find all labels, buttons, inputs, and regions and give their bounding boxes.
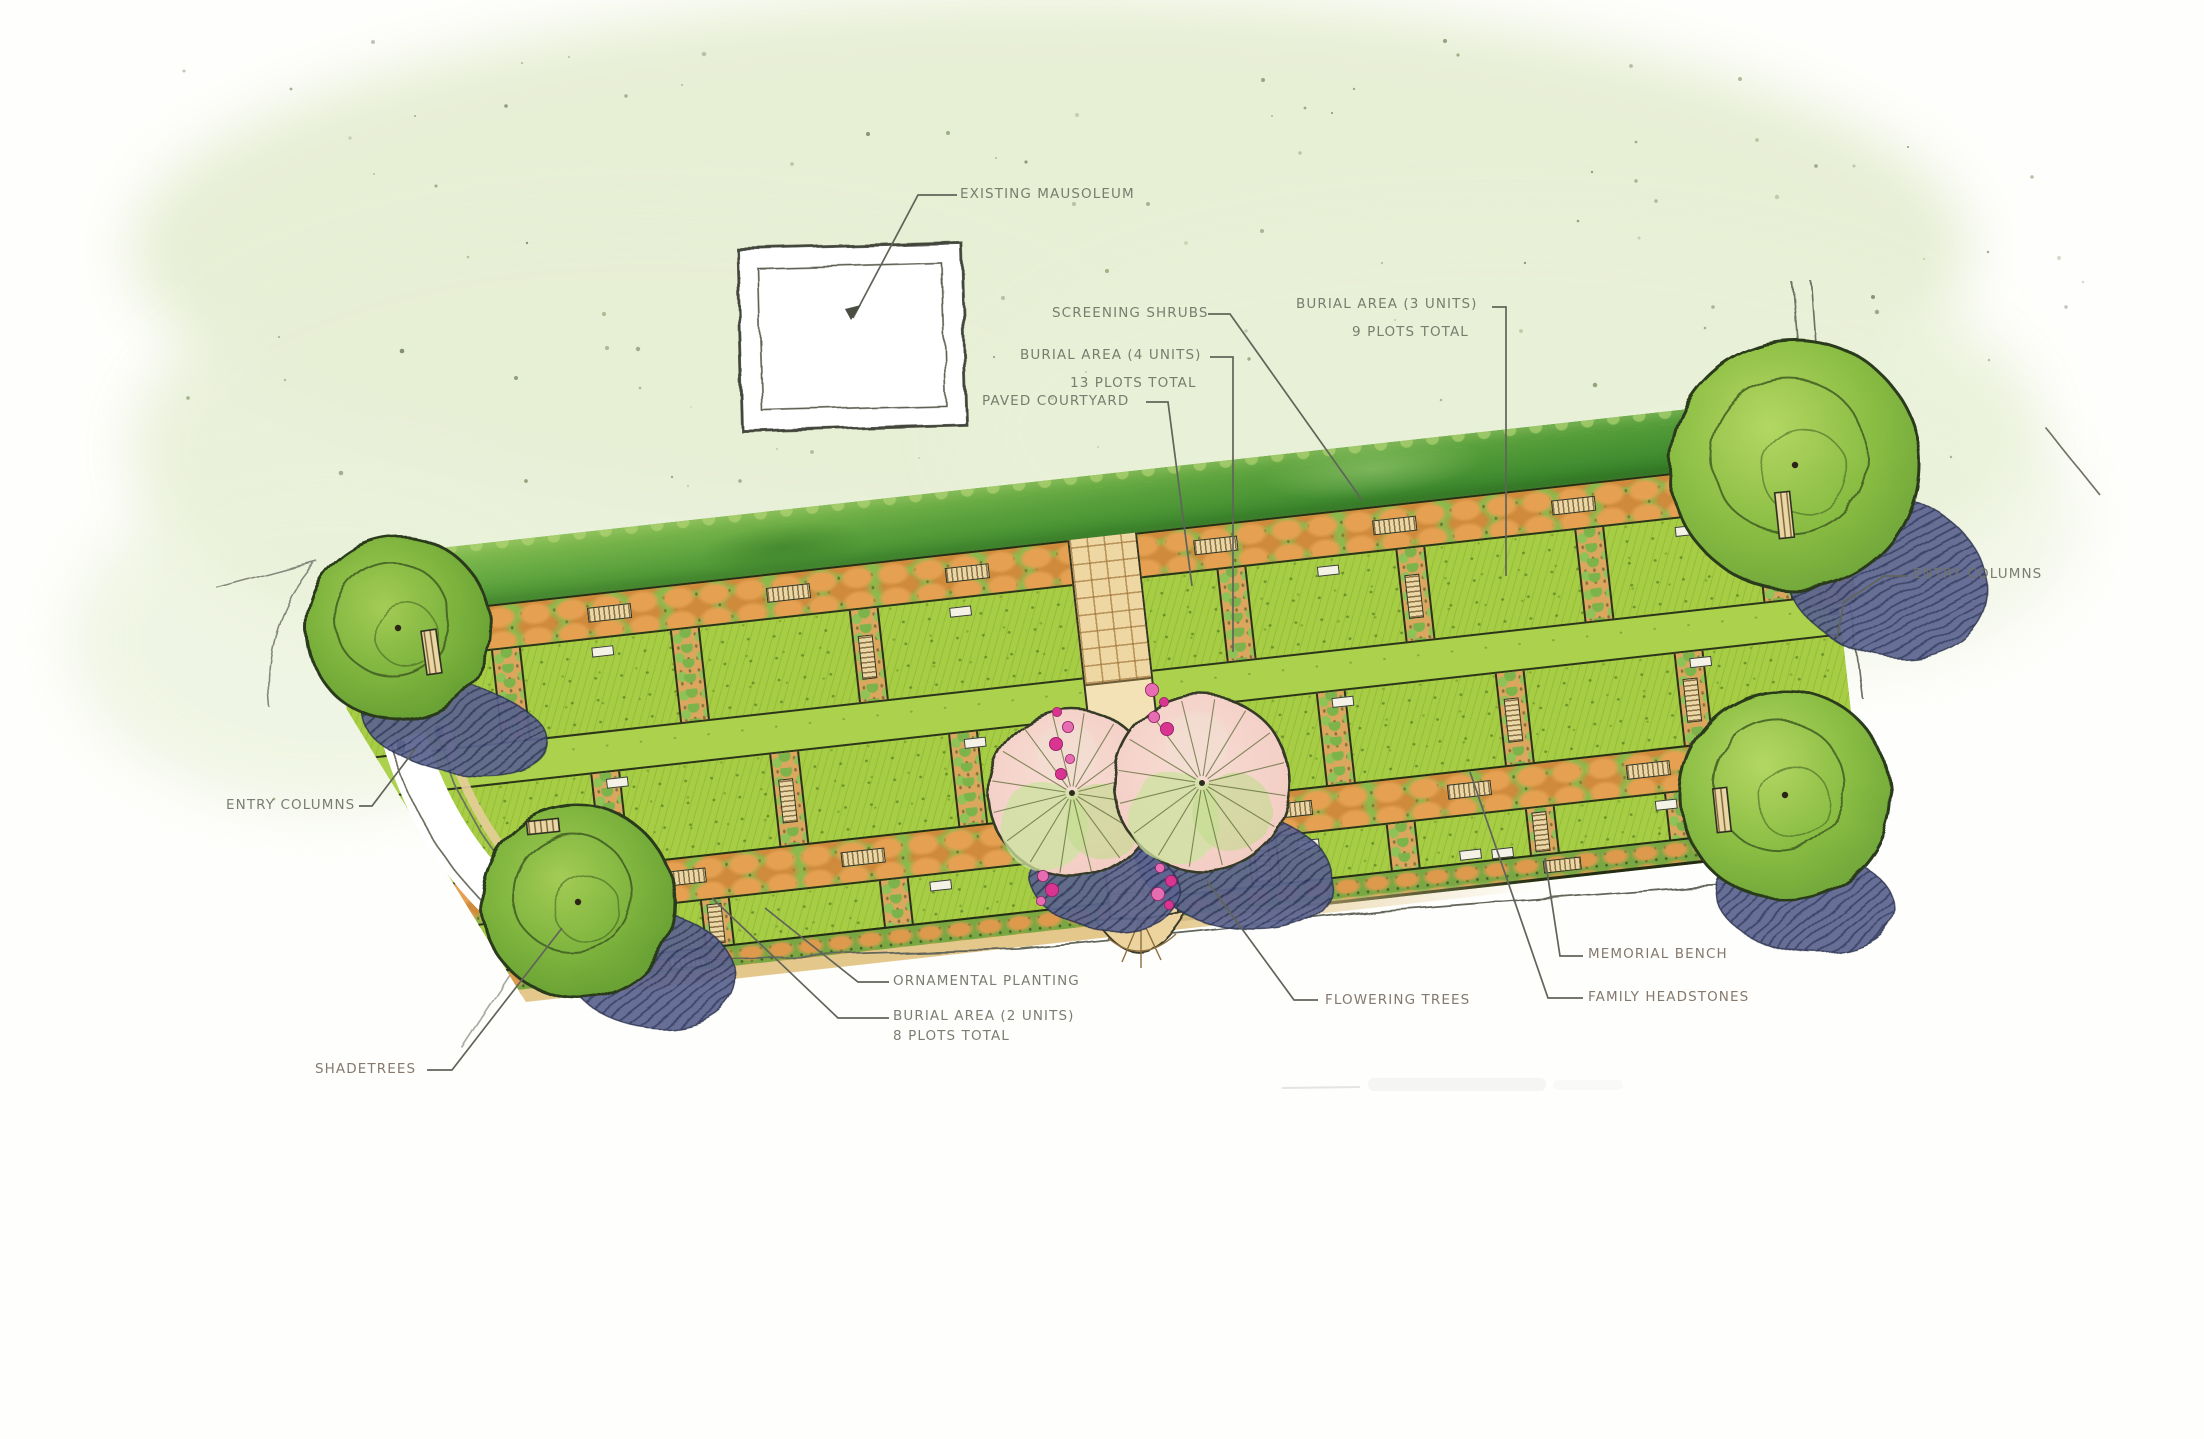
- label-burial-area-4: BURIAL AREA (4 UNITS): [1020, 347, 1202, 363]
- ghost-erased-text: [1282, 1078, 1623, 1091]
- leader-burial-area-4: [1210, 357, 1233, 652]
- label-flowering-trees: FLOWERING TREES: [1325, 992, 1470, 1008]
- label-memorial-bench: MEMORIAL BENCH: [1588, 946, 1728, 962]
- flower-dot: [1164, 900, 1173, 909]
- tree-trunk-dot: [1199, 780, 1205, 786]
- flower-dot: [1155, 863, 1164, 872]
- label-paved-courtyard: PAVED COURTYARD: [982, 393, 1129, 409]
- flower-dot: [1055, 768, 1066, 779]
- leader-memorial-bench: [1545, 858, 1583, 956]
- flower-dot: [1151, 887, 1164, 900]
- tree-trunk-dot: [1069, 790, 1075, 796]
- canopy-foliage-patch: [1165, 711, 1228, 774]
- leader-existing-mausoleum: [853, 195, 957, 318]
- label-entry-columns-right: ENTRY COLUMNS: [1913, 566, 2042, 582]
- flower-dot: [1159, 697, 1168, 706]
- flower-dot: [1145, 683, 1158, 696]
- tree-trunk-dot: [1782, 792, 1788, 798]
- flower-dot: [1049, 737, 1062, 750]
- site-plan-canvas: EXISTING MAUSOLEUM SCREENING SHRUBS BURI…: [0, 0, 2204, 1439]
- flower-dot: [1036, 896, 1045, 905]
- flower-dot: [1045, 883, 1058, 896]
- flower-dot: [1052, 707, 1061, 716]
- tree-trunk-dot: [1792, 462, 1798, 468]
- label-screening-shrubs: SCREENING SHRUBS: [1052, 305, 1209, 321]
- flower-dot: [1065, 754, 1074, 763]
- overlay-drawing-layer: [0, 0, 2204, 1439]
- leader-paved-courtyard: [1146, 402, 1192, 586]
- label-burial-area-3: BURIAL AREA (3 UNITS): [1296, 296, 1478, 312]
- leader-screening-shrubs: [1208, 314, 1362, 500]
- flower-dot: [1160, 722, 1173, 735]
- leader-burial-area-3: [1492, 307, 1506, 576]
- label-burial-area-3-sub: 9 PLOTS TOTAL: [1352, 324, 1469, 340]
- label-ornamental-planting: ORNAMENTAL PLANTING: [893, 973, 1080, 989]
- tree-trunk-dot: [395, 625, 401, 631]
- label-family-headstones: FAMILY HEADSTONES: [1588, 989, 1749, 1005]
- label-burial-area-2-sub: 8 PLOTS TOTAL: [893, 1028, 1010, 1044]
- tree-trunk-dot: [575, 899, 581, 905]
- leader-family-headstones: [1470, 772, 1583, 998]
- flower-dot: [1037, 870, 1048, 881]
- label-burial-area-4-sub: 13 PLOTS TOTAL: [1070, 375, 1197, 391]
- flower-dot: [1062, 721, 1073, 732]
- leader-ornamental-planting: [765, 908, 889, 982]
- flower-dot: [1148, 711, 1159, 722]
- label-shadetrees: SHADETREES: [315, 1061, 416, 1077]
- memorial-bench-marker: [526, 818, 559, 834]
- label-existing-mausoleum: EXISTING MAUSOLEUM: [960, 186, 1135, 202]
- flower-dot: [1165, 875, 1176, 886]
- label-entry-columns-left: ENTRY COLUMNS: [226, 797, 355, 813]
- label-burial-area-2: BURIAL AREA (2 UNITS): [893, 1008, 1075, 1024]
- flowering-trees: [988, 683, 1345, 947]
